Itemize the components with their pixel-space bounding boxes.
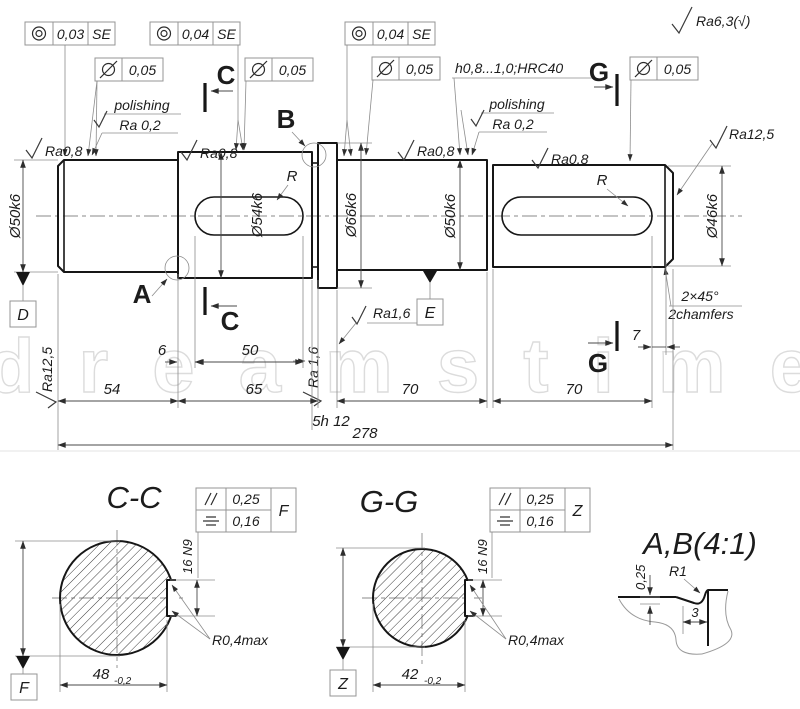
keyway-radius-1: R [277, 168, 298, 200]
dia-50k6-left: Ø50k6 D [7, 160, 58, 327]
leader [684, 579, 700, 593]
polishing-note-1: polishing Ra 0,2 [92, 97, 181, 155]
tolerance-datum: SE [412, 26, 431, 42]
dim-tolerance: -0,2 [424, 676, 442, 687]
dia-66k6: Ø66k6 [337, 143, 372, 288]
tolerance-frame-3: 0,04 SE [344, 22, 435, 156]
roughness-ra125-right: Ra12,5 [677, 126, 774, 195]
finish-check-icon [352, 306, 366, 324]
leader [470, 611, 506, 639]
finish-check-icon [398, 140, 414, 160]
detail-ab-title: A,B(4:1) [641, 526, 757, 561]
dim-value: 50 [242, 342, 259, 359]
break-line [619, 599, 702, 654]
detail-b-label: B [277, 104, 305, 146]
tolerance-value: 0,05 [664, 61, 691, 77]
roughness-ra125-left: Ra12,5 [36, 347, 56, 408]
leader [92, 133, 102, 155]
dim-value: 7 [632, 327, 641, 344]
roughness-value: Ra0,8 [551, 151, 589, 167]
section-letter-g: G [588, 348, 608, 378]
detail-b-leader [292, 132, 305, 146]
radius-label: R [287, 168, 298, 185]
finish-check-icon [181, 140, 197, 160]
tolerance-frame-cc: 0,25 0,16 F [196, 488, 296, 578]
keyway-width-value: 16 N9 [180, 539, 195, 574]
fillet-note-cc: R0,4max [172, 585, 269, 648]
roughness-ra08-2: Ra0,8 [181, 140, 238, 161]
roughness-value: Ra0,8 [200, 145, 238, 161]
dim-value: 48 [93, 666, 110, 683]
leader [172, 611, 210, 639]
finish-check-icon [471, 110, 484, 126]
frame-leader-arrow [630, 80, 631, 161]
leader [470, 585, 506, 639]
dia-54k6: Ø54k6 [221, 152, 266, 278]
symmetry-value: 0,16 [232, 513, 259, 529]
chamfer-text: 2×45° [680, 288, 719, 304]
chamfer-note: 2×45° 2chamfers [665, 268, 742, 322]
tolerance-value: 0,03 [57, 26, 84, 42]
tolerance-frame-gg: 0,25 0,16 Z [490, 488, 590, 578]
symmetry-value: 0,16 [526, 513, 553, 529]
keyway-width-value: 16 N9 [475, 539, 490, 574]
break-line [702, 591, 732, 654]
dim-value: 65 [246, 381, 263, 398]
roughness-value: Ra 0,2 [492, 116, 533, 132]
tolerance-datum: SE [92, 26, 111, 42]
dim-value: 70 [402, 381, 419, 398]
detail-depth-dim: 0,25 [633, 564, 660, 625]
detail-width-dim: 3 [683, 605, 707, 634]
polishing-text: polishing [113, 97, 169, 113]
detail-r1-note: R1 [669, 563, 700, 593]
datum-letter-z: Z [337, 676, 349, 693]
tolerance-value: 0,05 [129, 62, 156, 78]
tolerance-value: 0,04 [377, 26, 404, 42]
detail-b-letter: B [277, 104, 296, 134]
dia-label: Ø54k6 [249, 192, 266, 238]
hardness-text: h0,8...1,0;HRC40 [455, 60, 563, 76]
polishing-note-2: polishing Ra 0,2 [471, 96, 554, 155]
detail-view-ab: A,B(4:1) R1 0,25 3 [618, 526, 757, 654]
finish-check-icon [94, 111, 107, 127]
dim-value: 278 [351, 425, 378, 442]
tolerance-value: 0,04 [182, 26, 209, 42]
leader [472, 132, 479, 155]
dia-label: Ø50k6 [442, 193, 459, 239]
section-gg-title: G-G [360, 484, 419, 519]
general-roughness-text: Ra6,3(√) [696, 13, 750, 29]
roughness-ra08-1: Ra0,8 [26, 138, 83, 159]
fillet-value: R0,4max [508, 632, 565, 648]
engineering-drawing-canvas: dreamstime A B [0, 0, 800, 709]
dim-tolerance: -0,2 [114, 676, 132, 687]
chamfer-text: 2chamfers [667, 306, 733, 322]
datum-triangle-f [16, 656, 30, 669]
fillet-note-gg: R0,4max [470, 585, 565, 648]
frame-leader-arrow [366, 80, 373, 155]
dim-value: 42 [402, 666, 419, 683]
leader-arrow [454, 78, 460, 155]
groove-dim-value: 5h 12 [312, 413, 350, 430]
section-view-cc: C-C 16 N9 0,25 0,16 F R0,4max [11, 480, 296, 700]
tolerance-datum: SE [217, 26, 236, 42]
roughness-value: Ra0,8 [417, 143, 455, 159]
datum-triangle-z [336, 647, 350, 660]
radius-label: R [597, 172, 608, 189]
tolerance-frame-1: 0,03 SE [25, 22, 115, 156]
datum-letter-d: D [17, 307, 29, 324]
dim-value: 6 [158, 342, 167, 359]
section-letter-c: C [217, 60, 236, 90]
finish-check-icon [36, 392, 56, 408]
dia-label: Ø46k6 [704, 193, 721, 239]
roughness-ra16-rotated: Ra 1,6 [293, 347, 321, 406]
depth-value: 0,25 [633, 564, 648, 590]
dia-50k6-right: Ø50k6 [442, 160, 460, 270]
tolerance-value: 0,05 [406, 61, 433, 77]
leader [172, 585, 210, 639]
fillet-value: R0,4max [212, 632, 269, 648]
section-c-marker-top: C [205, 60, 236, 112]
datum-triangle-d [16, 272, 30, 286]
roughness-value: Ra 1,6 [305, 347, 321, 388]
roughness-value: Ra1,6 [373, 305, 411, 321]
cylindricity-frame-3: 0,05 [366, 57, 440, 155]
frame-leader-arrow [244, 81, 246, 150]
finish-check-icon [672, 7, 692, 33]
groove-profile [676, 590, 728, 604]
roughness-value: Ra0,8 [45, 143, 83, 159]
section-c-marker-bottom: C [205, 287, 240, 336]
main-view: A B Ø50k6 D Ø54k6 Ø66k6 [7, 104, 742, 327]
tolerance-value: 0,05 [279, 62, 306, 78]
frame-datum: Z [572, 503, 584, 520]
detail-a-letter: A [133, 279, 152, 309]
roughness-ra08-3: Ra0,8 [398, 140, 455, 160]
general-roughness-note: Ra6,3(√) [672, 7, 750, 33]
section-cc-title: C-C [106, 480, 162, 515]
dia-label: Ø66k6 [343, 192, 360, 238]
parallelism-value: 0,25 [232, 491, 259, 507]
frame-leader-arrow [347, 120, 351, 156]
shaft-cross-section [60, 541, 174, 655]
dim-value: 54 [104, 381, 121, 398]
roughness-value: Ra12,5 [39, 347, 55, 392]
polishing-text: polishing [488, 96, 544, 112]
width-value: 3 [691, 605, 699, 620]
shaft-cross-section [373, 549, 471, 647]
section-g-marker-top: G [589, 57, 617, 106]
dia-label: Ø50k6 [7, 193, 24, 239]
dim-278: 278 [58, 425, 673, 445]
frame-leader-arrow [238, 120, 243, 150]
radius-value: R1 [669, 563, 687, 579]
leader [677, 144, 712, 195]
cylindricity-frame-4: 0,05 [630, 57, 698, 161]
leader-arrow [461, 110, 468, 155]
finish-check-icon [710, 126, 727, 148]
frame-leader-arrow [344, 120, 347, 156]
datum-triangle-e [423, 271, 437, 283]
datum-letter-e: E [425, 305, 436, 322]
shaft-drawing: dreamstime A B [0, 0, 800, 709]
section-letter-c: C [221, 306, 240, 336]
roughness-value: Ra 0,2 [119, 117, 160, 133]
section-letter-g: G [589, 57, 609, 87]
finish-check-icon [26, 138, 42, 158]
dim-value: 70 [566, 381, 583, 398]
detail-a-leader [152, 279, 167, 296]
dim-70-b: 70 [493, 381, 652, 401]
datum-letter-f: F [19, 680, 30, 697]
datum-e: E [417, 271, 443, 325]
frame-datum: F [279, 503, 290, 520]
roughness-value: Ra12,5 [729, 126, 774, 142]
parallelism-value: 0,25 [526, 491, 553, 507]
frame-leader-arrow [88, 81, 97, 156]
detail-a-label: A [133, 279, 167, 309]
section-view-gg: G-G 16 N9 0,25 0,16 Z R0,4max [330, 484, 590, 696]
keyway-radius-2: R [597, 172, 628, 206]
